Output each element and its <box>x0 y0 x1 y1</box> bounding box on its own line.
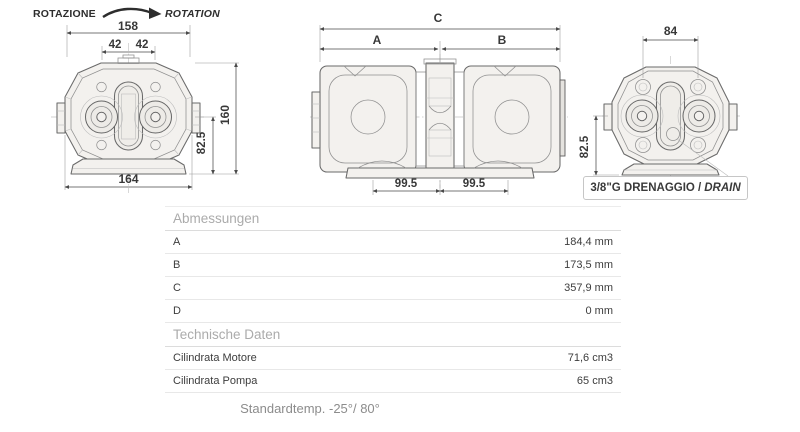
drain-label: 3/8"G DRENAGGIO /DRAIN <box>583 176 748 200</box>
left-port <box>621 95 663 137</box>
right-port <box>678 95 720 137</box>
table-row-c: C 357,9 mm <box>165 277 621 300</box>
left-port <box>81 96 123 138</box>
row-label: Cilindrata Pompa <box>173 375 257 387</box>
svg-text:160: 160 <box>218 105 232 125</box>
svg-text:42: 42 <box>136 39 149 51</box>
pump-front-body <box>57 55 200 174</box>
svg-text:A: A <box>373 33 382 47</box>
dim-A: A <box>320 33 440 64</box>
svg-text:C: C <box>434 11 443 25</box>
standard-temperature-note: Standardtemp. -25°/ 80° <box>0 401 620 416</box>
svg-text:158: 158 <box>118 19 138 33</box>
specs-table: Abmessungen A 184,4 mm B 173,5 mm C 357,… <box>165 206 621 393</box>
svg-text:82.5: 82.5 <box>196 131 208 154</box>
section-header-abmessungen: Abmessungen <box>165 207 621 231</box>
section-title: Abmessungen <box>173 211 259 226</box>
datasheet-page: ROTAZIONE ROTATION <box>0 0 800 432</box>
table-row-cilindrata-pompa: Cilindrata Pompa 65 cm3 <box>165 370 621 393</box>
rotation-label-it: ROTAZIONE <box>33 8 96 20</box>
front-view-drawing: ROTAZIONE ROTATION <box>25 3 240 200</box>
row-value: 184,4 mm <box>564 236 613 248</box>
svg-text:99.5: 99.5 <box>463 178 486 190</box>
rotation-arrow-icon <box>103 8 162 20</box>
dim-B: B <box>442 33 560 49</box>
row-value: 173,5 mm <box>564 259 613 271</box>
row-label: B <box>173 259 180 271</box>
drain-label-text: 3/8"G DRENAGGIO / <box>590 182 701 194</box>
side-view-drawing: C A B 99.5 99.5 <box>298 8 575 200</box>
rotation-label-en: ROTATION <box>165 8 220 20</box>
row-label: C <box>173 282 181 294</box>
table-row-a: A 184,4 mm <box>165 231 621 254</box>
section-header-technische-daten: Technische Daten <box>165 323 621 347</box>
svg-text:82.5: 82.5 <box>579 135 591 158</box>
dim-158: 158 <box>67 19 190 57</box>
dim-99-5: 99.5 99.5 <box>373 178 508 195</box>
right-port <box>135 96 177 138</box>
row-label: Cilindrata Motore <box>173 352 257 364</box>
svg-text:99.5: 99.5 <box>395 178 418 190</box>
table-row-b: B 173,5 mm <box>165 254 621 277</box>
table-row-d: D 0 mm <box>165 300 621 323</box>
row-label: A <box>173 236 180 248</box>
svg-text:42: 42 <box>109 39 122 51</box>
drain-label-italic: DRAIN <box>704 182 740 194</box>
pump-side-body <box>312 59 565 178</box>
section-title: Technische Daten <box>173 327 280 342</box>
row-value: 71,6 cm3 <box>568 352 613 364</box>
svg-text:B: B <box>498 33 507 47</box>
svg-text:84: 84 <box>664 24 678 38</box>
row-label: D <box>173 305 181 317</box>
svg-text:164: 164 <box>118 172 138 186</box>
row-value: 0 mm <box>586 305 614 317</box>
table-row-cilindrata-motore: Cilindrata Motore 71,6 cm3 <box>165 347 621 370</box>
row-value: 357,9 mm <box>564 282 613 294</box>
row-value: 65 cm3 <box>577 375 613 387</box>
pump-rear-body <box>604 67 737 176</box>
